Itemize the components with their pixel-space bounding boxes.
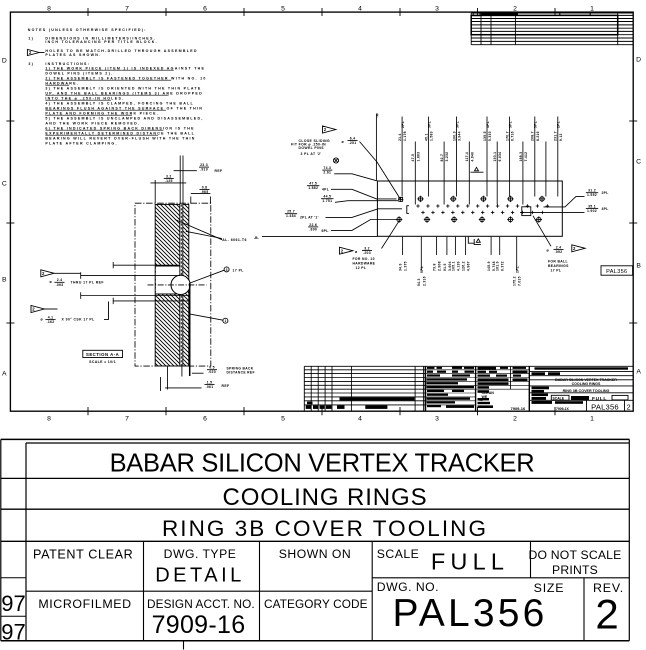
svg-text:2: 2 bbox=[513, 416, 517, 423]
svg-text:DISTANCE REF: DISTANCE REF bbox=[227, 370, 255, 374]
svg-text:5.333: 5.333 bbox=[488, 131, 492, 141]
svg-text:REF: REF bbox=[215, 169, 223, 173]
svg-text:BABAR SILICON VERTEX TRACKER: BABAR SILICON VERTEX TRACKER bbox=[110, 450, 535, 478]
svg-text:73.8: 73.8 bbox=[433, 263, 437, 271]
svg-text:1.751: 1.751 bbox=[322, 199, 332, 203]
svg-text:4.640: 4.640 bbox=[470, 152, 474, 162]
svg-text:21.4: 21.4 bbox=[398, 133, 402, 141]
svg-text:22.6: 22.6 bbox=[309, 223, 317, 227]
svg-text:6.034: 6.034 bbox=[498, 152, 502, 162]
svg-text:2PL: 2PL bbox=[557, 121, 561, 128]
svg-text:161.9: 161.9 bbox=[496, 261, 500, 271]
svg-text:8: 8 bbox=[47, 5, 51, 12]
svg-text:BEARINGS FLUSH AGAINST THE SUR: BEARINGS FLUSH AGAINST THE SURFACE OF TH… bbox=[45, 106, 203, 110]
svg-text:17 PL: 17 PL bbox=[233, 269, 244, 273]
svg-text:PAL356: PAL356 bbox=[591, 402, 619, 411]
svg-text:-B-: -B- bbox=[254, 236, 259, 240]
svg-text:X 90° CSK 17 PL: X 90° CSK 17 PL bbox=[62, 318, 95, 322]
svg-text:4.967: 4.967 bbox=[467, 261, 471, 271]
svg-text:HARDWARE: HARDWARE bbox=[353, 261, 376, 265]
svg-text:3.944: 3.944 bbox=[458, 131, 462, 141]
svg-text:3: 3 bbox=[435, 5, 439, 12]
svg-text:7: 7 bbox=[125, 5, 129, 12]
svg-text:17 PL: 17 PL bbox=[551, 269, 562, 273]
svg-text:DOWEL PINS (ITEMS 2).: DOWEL PINS (ITEMS 2). bbox=[45, 71, 113, 75]
svg-text:.061: .061 bbox=[206, 385, 214, 389]
svg-text:231.7: 231.7 bbox=[554, 131, 558, 141]
svg-text:4.139: 4.139 bbox=[456, 261, 460, 271]
svg-text:BEARING WILL REVERT OVER-FLUSH: BEARING WILL REVERT OVER-FLUSH WITH THE … bbox=[45, 136, 195, 140]
svg-text:44.5: 44.5 bbox=[323, 195, 331, 199]
svg-text:3PL: 3PL bbox=[508, 121, 512, 128]
svg-text:1.583: 1.583 bbox=[430, 131, 434, 141]
svg-text:DETAIL: DETAIL bbox=[155, 564, 245, 586]
svg-text:9.12: 9.12 bbox=[559, 133, 563, 141]
svg-text:A: A bbox=[2, 371, 7, 378]
svg-text:5: 5 bbox=[281, 416, 285, 423]
svg-text:2.4: 2.4 bbox=[57, 278, 63, 282]
svg-text:.251: .251 bbox=[349, 141, 357, 145]
svg-text:COOLING RINGS: COOLING RINGS bbox=[572, 382, 601, 386]
svg-text:2: 2 bbox=[595, 590, 618, 637]
svg-text:8: 8 bbox=[47, 416, 51, 423]
svg-text:3.2: 3.2 bbox=[364, 246, 370, 250]
svg-text:170.7: 170.7 bbox=[506, 131, 510, 141]
svg-text:2: 2 bbox=[627, 403, 631, 412]
svg-text:3: 3 bbox=[435, 416, 439, 423]
svg-text:1): 1) bbox=[28, 36, 34, 40]
svg-text:REF: REF bbox=[222, 384, 230, 388]
svg-text:7: 7 bbox=[125, 416, 129, 423]
svg-text:1.375: 1.375 bbox=[404, 261, 408, 271]
svg-text:0.5: 0.5 bbox=[209, 366, 215, 370]
svg-text:6PL: 6PL bbox=[322, 229, 329, 233]
svg-text:DO NOT SCALE: DO NOT SCALE bbox=[529, 548, 622, 562]
svg-text:31.2: 31.2 bbox=[588, 189, 596, 193]
svg-text:.092: .092 bbox=[555, 250, 563, 254]
svg-text:SCALE: SCALE bbox=[377, 547, 419, 561]
svg-text:4: 4 bbox=[358, 416, 362, 423]
svg-text:B: B bbox=[2, 277, 7, 284]
svg-text:INTO THE ⌀ .250-IN HOLES.: INTO THE ⌀ .250-IN HOLES. bbox=[45, 96, 124, 100]
svg-text:1.902: 1.902 bbox=[587, 209, 597, 213]
svg-text:1: 1 bbox=[590, 416, 594, 423]
svg-text:1.178: 1.178 bbox=[403, 131, 407, 141]
svg-text:D: D bbox=[2, 58, 7, 65]
svg-text:145.9: 145.9 bbox=[487, 261, 491, 271]
svg-text:25.7: 25.7 bbox=[287, 210, 295, 214]
svg-text:6) THE INDICATED SPRING BACK D: 6) THE INDICATED SPRING BACK DIMENSION I… bbox=[45, 126, 194, 130]
svg-text:7.015: 7.015 bbox=[518, 276, 522, 286]
svg-text:91.5: 91.5 bbox=[443, 263, 447, 271]
svg-text:3.232: 3.232 bbox=[445, 152, 449, 162]
svg-text:AND THE WORK PIECE REMOVED.: AND THE WORK PIECE REMOVED. bbox=[45, 121, 140, 125]
svg-text:6.372: 6.372 bbox=[501, 261, 505, 271]
svg-text:1.882: 1.882 bbox=[308, 186, 318, 190]
svg-text:.093: .093 bbox=[56, 283, 64, 287]
svg-text:12 PL: 12 PL bbox=[356, 266, 367, 270]
svg-text:1) THE WORK PIECE (ITEM 1) IS: 1) THE WORK PIECE (ITEM 1) IS INDEXED AG… bbox=[45, 66, 205, 70]
svg-text:.919: .919 bbox=[200, 168, 208, 172]
svg-text:1: 1 bbox=[224, 319, 226, 323]
svg-text:1.592: 1.592 bbox=[587, 193, 597, 197]
svg-text:2PL: 2PL bbox=[602, 191, 609, 195]
svg-text:SECTION A-A: SECTION A-A bbox=[86, 352, 119, 357]
svg-text:34.9: 34.9 bbox=[399, 263, 403, 271]
svg-text:PAL356: PAL356 bbox=[392, 592, 547, 635]
svg-text:5) THE ASSEMBLY IS UNCLAMPED A: 5) THE ASSEMBLY IS UNCLAMPED AND DISASSE… bbox=[45, 116, 203, 120]
svg-text:1: 1 bbox=[590, 5, 594, 12]
svg-text:6: 6 bbox=[203, 5, 207, 12]
svg-text:175.2: 175.2 bbox=[513, 276, 517, 286]
svg-text:74.3: 74.3 bbox=[323, 166, 331, 170]
svg-text:PLATE AND FORMING THE WORK PIE: PLATE AND FORMING THE WORK PIECE. bbox=[45, 111, 159, 115]
svg-text:.890: .890 bbox=[309, 227, 317, 231]
svg-text:SIZE: SIZE bbox=[534, 581, 565, 595]
svg-text:DOWEL PINS: DOWEL PINS bbox=[299, 146, 325, 150]
svg-text:A: A bbox=[636, 369, 641, 376]
svg-text:RING 3B COVER TOOLING: RING 3B COVER TOOLING bbox=[563, 389, 610, 393]
svg-text:C: C bbox=[636, 159, 641, 166]
svg-text:AL. 6061-T6: AL. 6061-T6 bbox=[222, 238, 247, 242]
svg-text:RING 3B COVER TOOLING: RING 3B COVER TOOLING bbox=[162, 516, 488, 541]
svg-text:PLATES AS SHOWN.: PLATES AS SHOWN. bbox=[45, 53, 101, 57]
svg-text:7909-1X: 7909-1X bbox=[556, 407, 570, 411]
svg-text:23.3: 23.3 bbox=[200, 163, 208, 167]
svg-text:3.2: 3.2 bbox=[166, 174, 172, 178]
svg-text:NOTES (UNLESS OTHERWISE SPECIF: NOTES (UNLESS OTHERWISE SPECIFIED): bbox=[28, 28, 147, 32]
svg-text:135.5: 135.5 bbox=[483, 131, 487, 141]
svg-text:54.3: 54.3 bbox=[417, 278, 421, 286]
svg-text:4PL: 4PL bbox=[486, 121, 490, 128]
svg-text:.020: .020 bbox=[208, 370, 216, 374]
svg-text:117.4: 117.4 bbox=[465, 152, 469, 162]
svg-text:4PL: 4PL bbox=[322, 188, 329, 192]
svg-text:EXPERIMENTALLY DETERMINED DIST: EXPERIMENTALLY DETERMINED DISTANCE THE B… bbox=[45, 131, 195, 135]
svg-text:.203: .203 bbox=[363, 251, 371, 255]
svg-text:208.7: 208.7 bbox=[531, 131, 535, 141]
svg-text:7909-16: 7909-16 bbox=[152, 611, 246, 639]
svg-text:2PL AT '1': 2PL AT '1' bbox=[300, 216, 319, 220]
svg-text:2PL: 2PL bbox=[516, 266, 520, 273]
svg-text:MICROFILMED: MICROFILMED bbox=[38, 597, 131, 611]
svg-text:6.716: 6.716 bbox=[511, 131, 515, 141]
svg-text:PATENT CLEAR: PATENT CLEAR bbox=[33, 548, 133, 562]
svg-text:PLATE AFTER CLAMPING.: PLATE AFTER CLAMPING. bbox=[45, 141, 117, 145]
svg-text:2.4: 2.4 bbox=[556, 245, 562, 249]
svg-text:2.908: 2.908 bbox=[438, 261, 442, 271]
svg-text:UP, AND THE BALL BEARINGS (ITE: UP, AND THE BALL BEARINGS (ITEMS 3) ARE … bbox=[45, 91, 203, 95]
svg-text:.162: .162 bbox=[47, 320, 55, 324]
svg-text:5: 5 bbox=[281, 5, 285, 12]
svg-text:4.1: 4.1 bbox=[48, 315, 54, 319]
svg-text:188.3: 188.3 bbox=[519, 152, 523, 162]
svg-text:SHOWN ON: SHOWN ON bbox=[279, 547, 351, 561]
svg-text:2: 2 bbox=[513, 5, 517, 12]
svg-text:.125: .125 bbox=[165, 179, 173, 183]
svg-text:5PL: 5PL bbox=[420, 266, 424, 273]
svg-text:97: 97 bbox=[1, 591, 25, 616]
svg-text:THRU 17 PL REF: THRU 17 PL REF bbox=[71, 280, 104, 284]
svg-text:DWG. TYPE: DWG. TYPE bbox=[164, 547, 237, 561]
svg-text:4PL: 4PL bbox=[602, 207, 609, 211]
svg-text:CATEGORY CODE: CATEGORY CODE bbox=[264, 597, 368, 611]
svg-text:97: 97 bbox=[1, 619, 25, 644]
svg-text:3 PL AT '2': 3 PL AT '2' bbox=[301, 152, 322, 156]
svg-text:3PL: 3PL bbox=[455, 121, 459, 128]
svg-text:FOR NO. 10: FOR NO. 10 bbox=[353, 257, 375, 261]
svg-text:C: C bbox=[2, 181, 7, 188]
svg-text:5PL: 5PL bbox=[427, 121, 431, 128]
svg-text:3: 3 bbox=[226, 268, 228, 272]
svg-text:1.484: 1.484 bbox=[286, 214, 296, 218]
svg-text:5PL: 5PL bbox=[534, 121, 538, 128]
svg-text:2) THE ASSEMBLY IS FASTENED TO: 2) THE ASSEMBLY IS FASTENED TOGETHER WIT… bbox=[45, 76, 206, 80]
svg-text:1.5: 1.5 bbox=[207, 380, 213, 384]
svg-text:PAL356: PAL356 bbox=[606, 269, 627, 275]
svg-text:7.412: 7.412 bbox=[524, 152, 528, 162]
svg-text:100.3: 100.3 bbox=[452, 131, 456, 141]
svg-text:82.7: 82.7 bbox=[440, 154, 444, 162]
svg-text:4) THE ASSEMBLY IS CLAMPED, FO: 4) THE ASSEMBLY IS CLAMPED, FORCING THE … bbox=[45, 101, 194, 105]
svg-text:3): 3) bbox=[28, 62, 34, 66]
svg-text:DESIGN ACCT. NO.: DESIGN ACCT. NO. bbox=[147, 597, 255, 611]
svg-text:126.2: 126.2 bbox=[462, 261, 466, 271]
svg-text:8.216: 8.216 bbox=[536, 131, 540, 141]
svg-text:BABAR SILICON VERTEX TRACKER: BABAR SILICON VERTEX TRACKER bbox=[555, 378, 617, 382]
svg-text:0.8: 0.8 bbox=[202, 185, 208, 189]
svg-text:35.1: 35.1 bbox=[588, 204, 596, 208]
svg-text:105.1: 105.1 bbox=[451, 261, 455, 271]
svg-text:-A-: -A- bbox=[376, 113, 380, 118]
svg-text:45.1: 45.1 bbox=[425, 133, 429, 141]
svg-text:PRINTS: PRINTS bbox=[552, 563, 598, 577]
svg-text:2.61: 2.61 bbox=[323, 171, 331, 175]
svg-text:FULL: FULL bbox=[592, 396, 607, 402]
svg-text:HARDWARE.: HARDWARE. bbox=[45, 81, 79, 85]
svg-text:1.863: 1.863 bbox=[416, 152, 420, 162]
svg-text:B: B bbox=[636, 263, 641, 270]
svg-text:4: 4 bbox=[358, 5, 362, 12]
svg-text:P.E.: P.E. bbox=[478, 398, 484, 402]
svg-text:47.5: 47.5 bbox=[309, 182, 317, 186]
svg-text:153.1: 153.1 bbox=[493, 152, 497, 162]
svg-text:6: 6 bbox=[203, 416, 207, 423]
svg-text:BEARINGS: BEARINGS bbox=[548, 264, 569, 268]
svg-text:7909-16: 7909-16 bbox=[511, 406, 526, 411]
svg-text:FOR BALL: FOR BALL bbox=[548, 260, 568, 264]
svg-text:6.4: 6.4 bbox=[350, 136, 356, 140]
svg-text:FULL: FULL bbox=[431, 549, 509, 575]
svg-text:2PL: 2PL bbox=[401, 121, 405, 128]
svg-text:SCALE: SCALE bbox=[553, 396, 565, 400]
svg-text:COOLING RINGS: COOLING RINGS bbox=[223, 484, 428, 511]
svg-text:3) THE ASSEMBLY IS ORIENTED WI: 3) THE ASSEMBLY IS ORIENTED WITH THE THI… bbox=[45, 86, 201, 90]
svg-text:SCALE = 10/1: SCALE = 10/1 bbox=[89, 360, 116, 364]
svg-text:2.316: 2.316 bbox=[422, 276, 426, 286]
svg-text:47.5: 47.5 bbox=[411, 154, 415, 162]
svg-text:D: D bbox=[636, 57, 641, 64]
svg-text:INCH TOLERANCING PER TITLE BLO: INCH TOLERANCING PER TITLE BLOCK. bbox=[45, 40, 157, 44]
